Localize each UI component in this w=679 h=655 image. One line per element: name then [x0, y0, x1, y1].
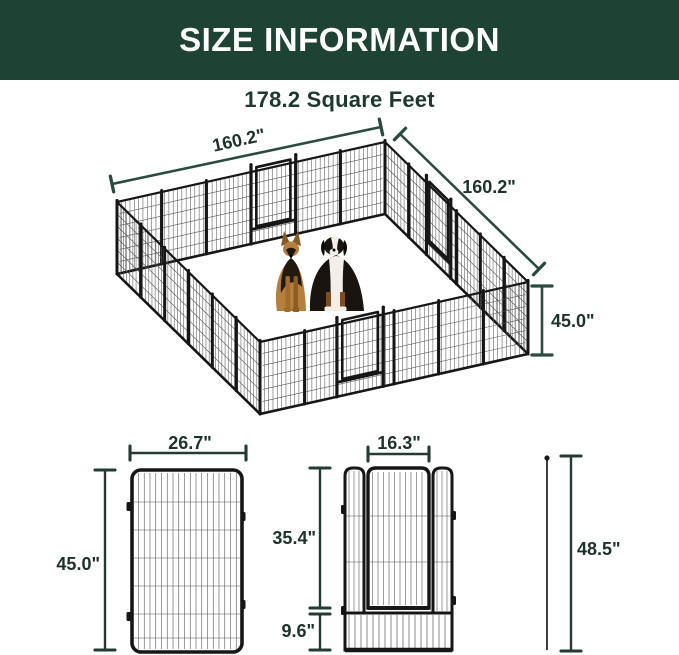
- bernese-dog-illustration: [310, 237, 364, 312]
- dogs-illustration: [276, 231, 364, 312]
- ground-stake-illustration: [544, 455, 549, 650]
- dim-door-width: 16.3": [377, 433, 421, 453]
- german-shepherd-illustration: [276, 231, 306, 312]
- area-subtitle: 178.2 Square Feet: [0, 87, 679, 113]
- single-panel-diagram: [127, 470, 246, 652]
- bottom-dimension-lines: [95, 446, 581, 651]
- header-band: SIZE INFORMATION: [0, 0, 679, 80]
- dim-pen-height: 45.0": [551, 311, 595, 331]
- door-panel-diagram: [341, 468, 456, 650]
- dim-door-bottom: 9.6": [281, 621, 315, 641]
- dim-panel-width: 26.7": [168, 433, 212, 453]
- page-title: SIZE INFORMATION: [179, 21, 500, 59]
- dim-pen-right-edge: 160.2": [462, 177, 516, 197]
- dim-stake-height: 48.5": [577, 539, 621, 559]
- dim-panel-height: 45.0": [56, 554, 100, 574]
- dim-pen-left-edge: 160.2": [210, 125, 267, 156]
- dim-door-height: 35.4": [272, 528, 316, 548]
